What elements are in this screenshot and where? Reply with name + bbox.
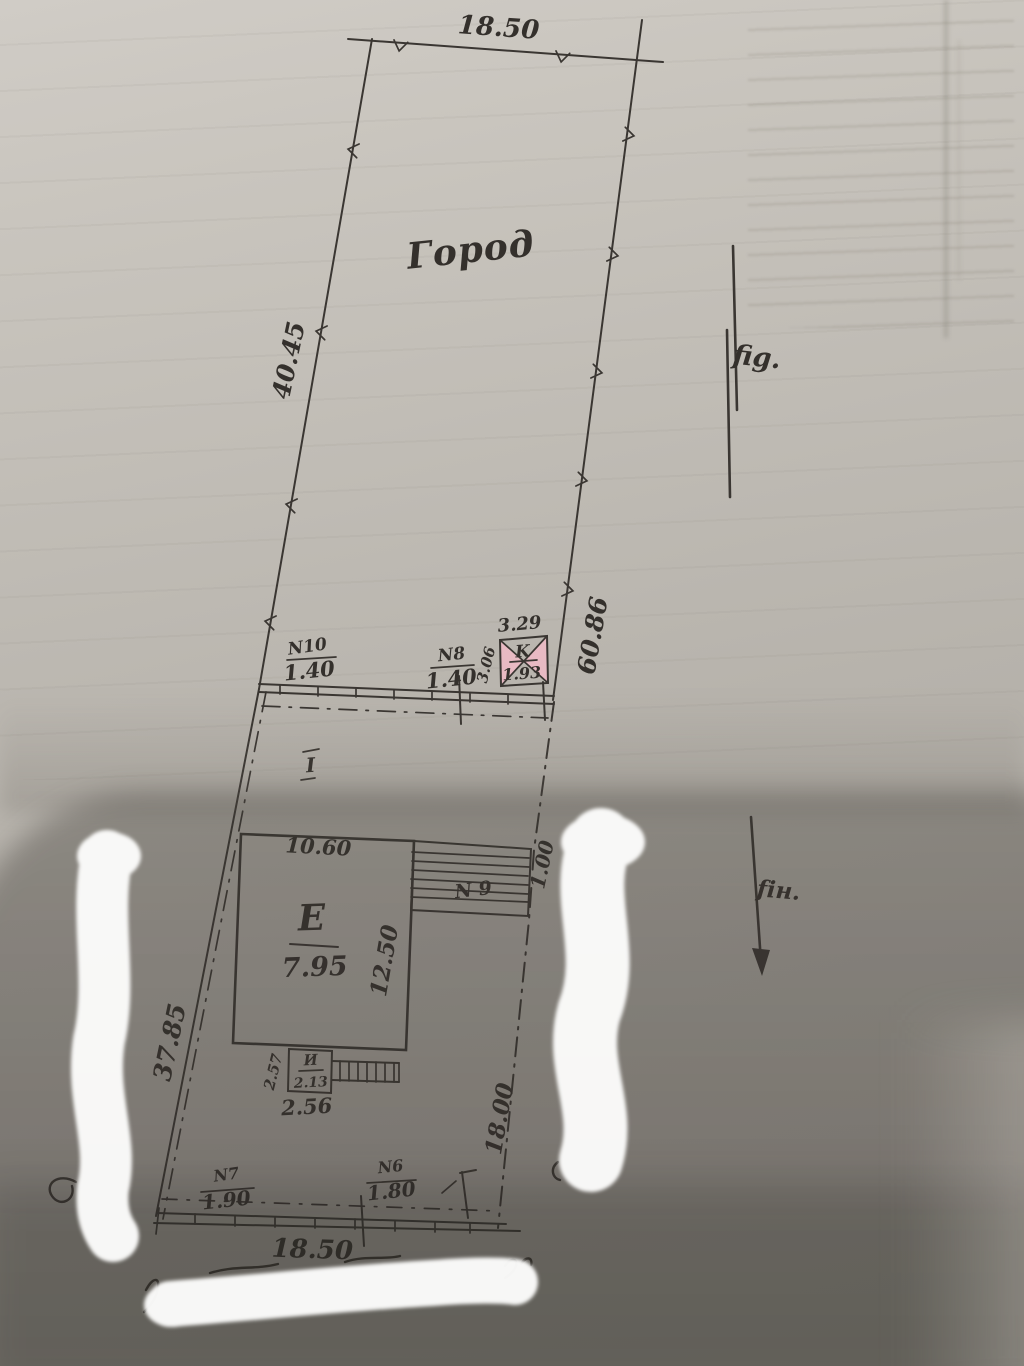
- whiteout-blobs: [0, 0, 1024, 1366]
- photo-of-plot-plan: 18.50 40.45 60.86 Город fig. N10: [0, 0, 1024, 1366]
- whiteout-bottom: [144, 1281, 515, 1327]
- whiteout-right: [561, 814, 645, 1160]
- whiteout-left: [77, 832, 141, 1236]
